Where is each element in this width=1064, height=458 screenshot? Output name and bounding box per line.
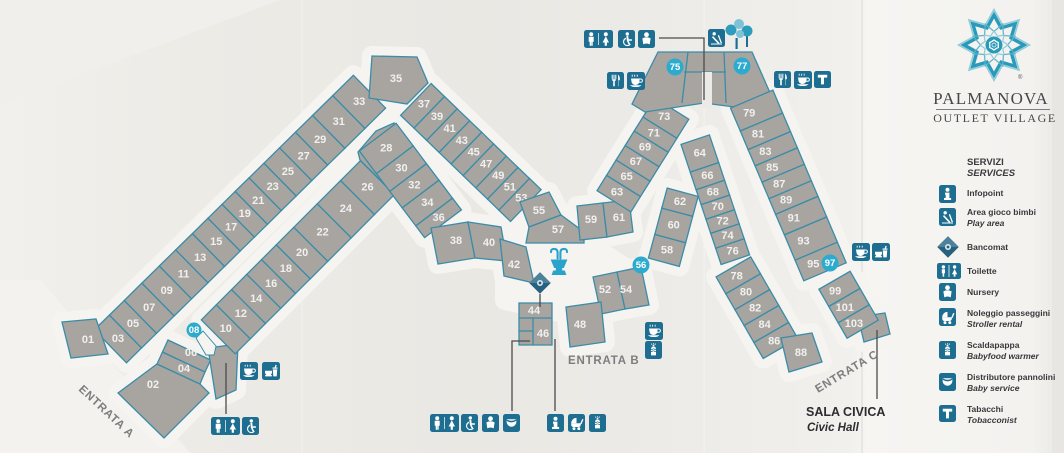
- svg-text:14: 14: [250, 293, 263, 305]
- svg-text:37: 37: [418, 98, 430, 110]
- svg-text:59: 59: [585, 214, 597, 226]
- svg-text:Play area: Play area: [967, 218, 1005, 228]
- svg-text:02: 02: [147, 379, 159, 391]
- svg-text:Infopoint: Infopoint: [967, 188, 1004, 198]
- svg-text:80: 80: [740, 287, 752, 299]
- svg-text:81: 81: [752, 128, 764, 140]
- svg-text:18: 18: [280, 263, 292, 275]
- svg-text:23: 23: [267, 181, 279, 193]
- svg-text:Distributore pannolini: Distributore pannolini: [967, 372, 1055, 382]
- svg-text:44: 44: [528, 305, 541, 317]
- svg-text:63: 63: [611, 186, 623, 198]
- svg-text:26: 26: [361, 182, 373, 194]
- svg-text:Nursery: Nursery: [967, 287, 999, 297]
- svg-text:47: 47: [480, 158, 492, 170]
- svg-text:79: 79: [743, 108, 755, 120]
- svg-text:86: 86: [768, 335, 780, 347]
- svg-text:16: 16: [265, 278, 277, 290]
- svg-text:17: 17: [225, 222, 237, 234]
- svg-text:30: 30: [395, 163, 407, 175]
- svg-text:SERVICES: SERVICES: [967, 168, 1016, 179]
- svg-text:24: 24: [340, 203, 353, 215]
- svg-text:42: 42: [508, 259, 520, 271]
- svg-text:Noleggio passeggini: Noleggio passeggini: [967, 308, 1050, 318]
- svg-text:77: 77: [737, 61, 748, 72]
- svg-text:Stroller rental: Stroller rental: [967, 319, 1023, 329]
- svg-text:51: 51: [504, 181, 516, 193]
- svg-text:33: 33: [353, 96, 365, 108]
- svg-text:103: 103: [845, 318, 863, 330]
- svg-text:13: 13: [194, 252, 206, 264]
- svg-text:12: 12: [235, 308, 247, 320]
- svg-text:84: 84: [758, 319, 771, 331]
- svg-text:66: 66: [701, 170, 713, 182]
- svg-text:20: 20: [296, 247, 308, 259]
- svg-text:08: 08: [189, 325, 200, 336]
- svg-text:89: 89: [780, 195, 792, 207]
- svg-text:Babyfood warmer: Babyfood warmer: [967, 351, 1039, 361]
- svg-text:43: 43: [456, 135, 468, 147]
- svg-text:Scaldapappa: Scaldapappa: [967, 340, 1020, 350]
- svg-text:101: 101: [836, 302, 854, 314]
- svg-text:97: 97: [825, 258, 836, 269]
- svg-text:78: 78: [730, 270, 742, 282]
- svg-text:®: ®: [1018, 74, 1023, 81]
- svg-text:70: 70: [712, 201, 724, 213]
- svg-text:68: 68: [707, 186, 719, 198]
- svg-text:01: 01: [82, 334, 94, 346]
- svg-text:41: 41: [443, 123, 455, 135]
- svg-text:76: 76: [726, 246, 738, 258]
- svg-text:91: 91: [788, 213, 800, 225]
- svg-text:48: 48: [574, 319, 586, 331]
- svg-text:28: 28: [380, 142, 392, 154]
- svg-text:32: 32: [408, 180, 420, 192]
- svg-text:34: 34: [421, 197, 434, 209]
- svg-text:58: 58: [661, 244, 673, 256]
- svg-text:Area gioco bimbi: Area gioco bimbi: [967, 207, 1036, 217]
- svg-text:07: 07: [143, 302, 155, 314]
- svg-text:95: 95: [807, 259, 819, 271]
- svg-text:PALMANOVA: PALMANOVA: [933, 89, 1049, 108]
- svg-text:61: 61: [613, 212, 625, 224]
- svg-text:73: 73: [658, 111, 670, 123]
- svg-text:25: 25: [282, 166, 294, 178]
- svg-text:54: 54: [620, 284, 633, 296]
- svg-text:Tabacchi: Tabacchi: [967, 404, 1003, 414]
- svg-text:27: 27: [298, 150, 310, 162]
- svg-text:39: 39: [431, 111, 443, 123]
- svg-text:15: 15: [210, 236, 222, 248]
- svg-text:69: 69: [639, 142, 651, 154]
- svg-text:87: 87: [773, 179, 785, 191]
- svg-text:OUTLET VILLAGE: OUTLET VILLAGE: [933, 111, 1057, 125]
- svg-text:67: 67: [630, 156, 642, 168]
- svg-text:93: 93: [797, 236, 809, 248]
- svg-text:74: 74: [721, 230, 734, 242]
- svg-text:56: 56: [636, 260, 647, 271]
- svg-text:71: 71: [648, 128, 660, 140]
- svg-text:52: 52: [599, 284, 611, 296]
- svg-text:Baby service: Baby service: [967, 383, 1020, 393]
- svg-text:46: 46: [537, 328, 549, 340]
- svg-text:75: 75: [670, 62, 681, 73]
- svg-text:60: 60: [668, 219, 680, 231]
- svg-text:85: 85: [766, 162, 778, 174]
- svg-text:10: 10: [220, 323, 232, 335]
- svg-text:22: 22: [316, 227, 328, 239]
- svg-text:SALA CIVICA: SALA CIVICA: [806, 405, 885, 419]
- svg-text:72: 72: [716, 216, 728, 228]
- svg-text:36: 36: [432, 212, 444, 224]
- svg-text:21: 21: [252, 195, 264, 207]
- svg-text:Bancomat: Bancomat: [967, 242, 1008, 252]
- svg-text:88: 88: [795, 347, 807, 359]
- svg-text:55: 55: [533, 205, 545, 217]
- svg-text:83: 83: [759, 146, 771, 158]
- svg-text:35: 35: [390, 73, 402, 85]
- svg-text:09: 09: [161, 285, 173, 297]
- svg-text:49: 49: [492, 170, 504, 182]
- svg-text:Civic Hall: Civic Hall: [807, 422, 860, 434]
- svg-text:40: 40: [483, 237, 495, 249]
- svg-text:06: 06: [185, 347, 197, 359]
- svg-text:57: 57: [552, 224, 564, 236]
- svg-text:29: 29: [314, 134, 326, 146]
- svg-text:64: 64: [694, 147, 707, 159]
- svg-text:SERVIZI: SERVIZI: [967, 157, 1004, 168]
- svg-text:31: 31: [333, 116, 345, 128]
- svg-text:11: 11: [178, 268, 190, 280]
- svg-text:Toilette: Toilette: [967, 266, 997, 276]
- svg-text:05: 05: [127, 318, 139, 330]
- svg-text:99: 99: [829, 285, 841, 297]
- svg-text:03: 03: [112, 333, 124, 345]
- svg-text:38: 38: [450, 235, 462, 247]
- svg-text:45: 45: [468, 146, 480, 158]
- svg-text:62: 62: [674, 196, 686, 208]
- svg-text:82: 82: [749, 303, 761, 315]
- svg-text:65: 65: [620, 171, 632, 183]
- svg-text:ENTRATA B: ENTRATA B: [568, 355, 640, 367]
- svg-text:Tobacconist: Tobacconist: [967, 415, 1018, 425]
- svg-text:19: 19: [239, 208, 251, 220]
